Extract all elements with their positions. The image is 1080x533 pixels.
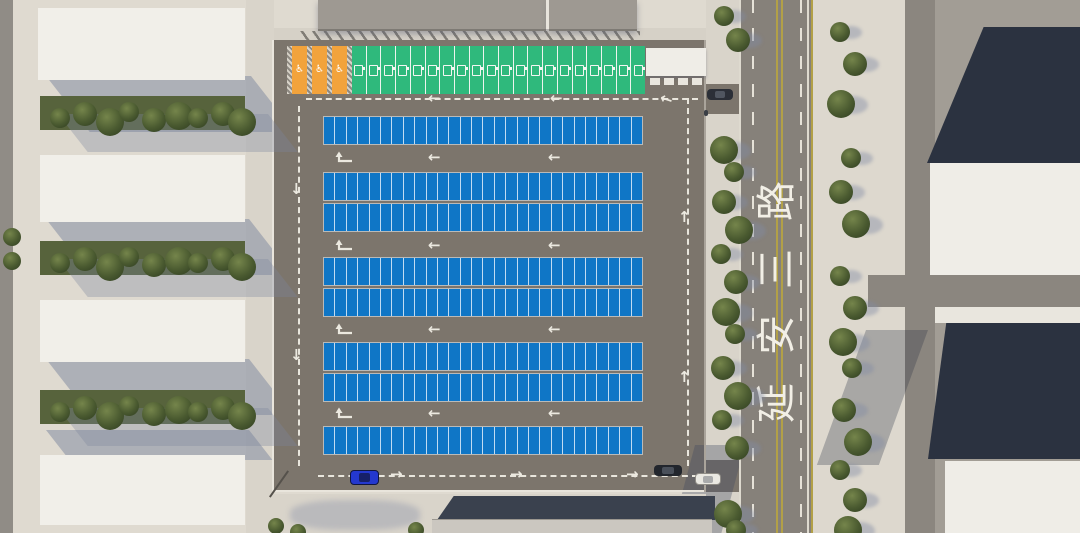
parking-stall <box>529 173 540 200</box>
parking-stall <box>552 374 563 401</box>
lane-arrow-right: → <box>390 467 403 482</box>
road-name-glyph: 延 <box>757 383 797 423</box>
pedestrian <box>704 110 708 116</box>
south-building-wall <box>432 519 712 533</box>
parking-stall <box>609 427 620 454</box>
parking-stall <box>506 117 517 144</box>
parking-stall <box>392 343 403 370</box>
parking-stall <box>483 204 494 231</box>
ev-stall <box>617 46 632 94</box>
tree <box>228 253 256 281</box>
parking-stall <box>415 117 426 144</box>
ev-charger-icon <box>443 65 452 76</box>
ev-plug-nub <box>437 67 439 70</box>
parking-stall <box>506 427 517 454</box>
parking-stall <box>381 289 392 316</box>
tree <box>830 460 850 480</box>
parking-stall <box>358 204 369 231</box>
tree <box>73 102 97 126</box>
ev-stall <box>352 46 367 94</box>
ev-charger-icon <box>619 65 628 76</box>
parking-stall <box>358 374 369 401</box>
tree <box>119 247 139 267</box>
parking-stall <box>438 173 449 200</box>
ev-charger-icon <box>501 65 510 76</box>
parking-stall <box>597 258 608 285</box>
parking-stall <box>586 427 597 454</box>
parking-stall <box>529 204 540 231</box>
parking-stall <box>370 343 381 370</box>
parking-stall <box>324 289 335 316</box>
tree <box>228 108 256 136</box>
office-dock-block <box>650 78 660 85</box>
ev-plug-nub <box>525 67 527 70</box>
parking-stall <box>575 343 586 370</box>
ev-stall <box>499 46 514 94</box>
lane-arrow-left: ← <box>428 322 441 337</box>
parking-stall <box>449 117 460 144</box>
parking-stall <box>472 374 483 401</box>
tree <box>50 253 70 273</box>
parking-stall <box>370 374 381 401</box>
lane-arrow-down: ↓ <box>290 348 303 363</box>
parking-stall <box>404 204 415 231</box>
tree <box>827 90 855 118</box>
parking-stall <box>415 343 426 370</box>
parking-stall <box>586 117 597 144</box>
ev-charger-icon <box>560 65 569 76</box>
tree <box>73 396 97 420</box>
ev-stall-band <box>352 46 645 94</box>
ev-plug-nub <box>510 67 512 70</box>
ev-stall <box>631 46 645 94</box>
tree <box>832 398 856 422</box>
tree <box>712 298 740 326</box>
accessible-stall: ♿ <box>292 46 307 94</box>
parking-stall <box>381 117 392 144</box>
parking-row <box>323 203 643 232</box>
warehouse-left-3 <box>40 300 245 362</box>
parking-stall <box>438 343 449 370</box>
parking-stall <box>392 173 403 200</box>
parking-stall <box>438 204 449 231</box>
parking-stall <box>529 374 540 401</box>
tree <box>725 436 749 460</box>
parking-stall <box>461 343 472 370</box>
parking-stall <box>347 117 358 144</box>
parking-stall <box>597 173 608 200</box>
parking-stall <box>381 427 392 454</box>
parking-stall <box>540 204 551 231</box>
road-name-glyph: 路 <box>757 181 797 221</box>
tree <box>724 162 744 182</box>
ev-charger-icon <box>369 65 378 76</box>
parking-stall <box>563 289 574 316</box>
parking-stall <box>415 427 426 454</box>
parking-stall <box>563 427 574 454</box>
parking-stall <box>358 258 369 285</box>
parking-stall <box>415 173 426 200</box>
parking-stall <box>449 289 460 316</box>
tree <box>119 102 139 122</box>
tree <box>712 410 732 430</box>
parking-stall <box>427 374 438 401</box>
parking-stall <box>540 289 551 316</box>
parking-stall <box>495 374 506 401</box>
parking-stall <box>324 427 335 454</box>
tree <box>188 108 208 128</box>
parking-stall <box>563 173 574 200</box>
parking-stall <box>392 258 403 285</box>
parking-stall <box>620 173 631 200</box>
parking-stall <box>495 258 506 285</box>
parking-stall <box>552 343 563 370</box>
parking-stall <box>597 374 608 401</box>
parking-stall <box>358 117 369 144</box>
parking-stall <box>415 258 426 285</box>
parking-stall <box>620 289 631 316</box>
parking-stall <box>392 117 403 144</box>
dark-car-east-entrance <box>707 89 733 100</box>
ev-charger-icon <box>575 65 584 76</box>
road-name-char-3: 安 <box>754 312 800 358</box>
parking-stall <box>495 117 506 144</box>
lane-arrow-left: ← <box>548 150 561 165</box>
parking-stall <box>347 289 358 316</box>
road-edge-yellow-east <box>811 0 813 533</box>
parking-stall <box>347 343 358 370</box>
parking-stall <box>324 173 335 200</box>
parking-stall <box>518 204 529 231</box>
warehouse-left-1 <box>38 8 245 80</box>
road-name-glyph: 三 <box>757 249 797 289</box>
lane-dash-east <box>800 0 802 533</box>
parking-stall <box>449 173 460 200</box>
tree <box>710 136 738 164</box>
parking-row <box>323 116 643 145</box>
parking-stall <box>358 343 369 370</box>
parking-stall <box>518 427 529 454</box>
parking-stall <box>370 117 381 144</box>
tree <box>142 402 166 426</box>
parking-stall <box>324 343 335 370</box>
lane-arrow-right: → <box>626 467 639 482</box>
tree <box>408 522 424 533</box>
parking-stall <box>518 117 529 144</box>
lane-arrow-left: ← <box>548 406 561 421</box>
tree <box>290 524 306 533</box>
parking-stall <box>472 173 483 200</box>
ev-stall <box>381 46 396 94</box>
tree <box>188 253 208 273</box>
parking-stall <box>324 374 335 401</box>
parking-stall <box>472 343 483 370</box>
car-windshield <box>703 476 713 483</box>
lane-arrow-left: ← <box>428 406 441 421</box>
road-name-glyph: 安 <box>757 315 797 355</box>
parking-stall <box>506 343 517 370</box>
parking-stall <box>461 289 472 316</box>
lane-arrow-left: ← <box>548 238 561 253</box>
parking-stall <box>483 117 494 144</box>
road-name-char-1: 路 <box>754 178 800 224</box>
parking-stall <box>415 289 426 316</box>
turn-arrow <box>332 237 353 250</box>
tree <box>843 52 867 76</box>
dark-roof-building-se <box>928 323 1080 459</box>
parking-stall <box>404 374 415 401</box>
parking-stall <box>335 374 346 401</box>
tree <box>842 210 870 238</box>
parking-stall <box>597 117 608 144</box>
ev-plug-nub <box>393 67 395 70</box>
car-windshield <box>662 467 673 475</box>
tree <box>3 228 21 246</box>
tree <box>726 28 750 52</box>
parking-stall <box>335 427 346 454</box>
parking-stall <box>586 258 597 285</box>
tree <box>119 396 139 416</box>
ev-stall <box>484 46 499 94</box>
parking-stall <box>438 427 449 454</box>
parking-stall <box>529 289 540 316</box>
ev-stall <box>514 46 529 94</box>
parking-stall <box>335 258 346 285</box>
parking-stall <box>404 427 415 454</box>
ev-plug-nub <box>569 67 571 70</box>
car-windshield <box>715 91 725 99</box>
parking-stall <box>358 173 369 200</box>
tree <box>142 253 166 277</box>
parking-stall <box>552 427 563 454</box>
ev-plug-nub <box>378 67 380 70</box>
parking-stall <box>518 258 529 285</box>
parking-stall <box>324 117 335 144</box>
parking-stall <box>540 343 551 370</box>
ev-plug-nub <box>599 67 601 70</box>
parking-stall <box>415 204 426 231</box>
parking-stall <box>540 117 551 144</box>
parking-stall <box>575 117 586 144</box>
parking-stall <box>529 343 540 370</box>
parking-stall <box>347 258 358 285</box>
ev-plug-nub <box>363 67 365 70</box>
parking-stall <box>620 427 631 454</box>
parking-stall <box>529 117 540 144</box>
parking-stall <box>483 258 494 285</box>
parking-stall <box>563 374 574 401</box>
parking-stall <box>632 173 642 200</box>
ev-charger-icon <box>398 65 407 76</box>
parking-stall <box>575 204 586 231</box>
parking-stall <box>518 374 529 401</box>
parking-stall <box>540 374 551 401</box>
parking-stall <box>483 374 494 401</box>
lane-arrow-left: ← <box>428 150 441 165</box>
parking-stall <box>540 427 551 454</box>
ev-charger-icon <box>516 65 525 76</box>
parking-stall <box>404 173 415 200</box>
warehouse-left-2 <box>40 155 245 222</box>
turn-arrow <box>332 321 353 334</box>
ev-charger-icon <box>428 65 437 76</box>
ev-charger-icon <box>634 65 643 76</box>
tree <box>50 402 70 422</box>
parking-stall <box>335 117 346 144</box>
parking-stall <box>358 427 369 454</box>
ev-plug-nub <box>466 67 468 70</box>
parking-stall <box>449 427 460 454</box>
office-dock-block <box>664 78 674 85</box>
parking-stall <box>518 289 529 316</box>
accessible-stall-band: ♿♿♿ <box>287 46 352 94</box>
ev-plug-nub <box>613 67 615 70</box>
ev-charger-icon <box>531 65 540 76</box>
parking-stall <box>586 173 597 200</box>
lot-office-building <box>646 48 706 76</box>
tree <box>843 296 867 320</box>
ev-stall <box>602 46 617 94</box>
parking-stall <box>575 289 586 316</box>
perimeter-dash-top <box>306 98 698 100</box>
parking-stall <box>609 117 620 144</box>
parking-stall <box>381 258 392 285</box>
parking-stall <box>427 117 438 144</box>
ev-plug-nub <box>584 67 586 70</box>
ev-plug-nub <box>452 67 454 70</box>
ev-charger-icon <box>590 65 599 76</box>
parking-stall <box>632 117 642 144</box>
parking-stall <box>506 173 517 200</box>
parking-stall <box>620 117 631 144</box>
ev-stall <box>440 46 455 94</box>
lane-arrow-left: ← <box>428 238 441 253</box>
parking-stall <box>438 258 449 285</box>
road-edge-line-east <box>807 0 809 533</box>
parking-stall <box>518 343 529 370</box>
ev-plug-nub <box>628 67 630 70</box>
lane-arrow-up: ↑ <box>678 210 691 225</box>
parking-stall <box>483 427 494 454</box>
parking-stall <box>381 173 392 200</box>
white-building-se <box>945 461 1080 533</box>
parking-stall <box>404 343 415 370</box>
tree <box>725 324 745 344</box>
parking-stall <box>415 374 426 401</box>
ev-plug-nub <box>496 67 498 70</box>
north-building-roof-2 <box>549 0 637 31</box>
parking-stall <box>324 258 335 285</box>
turn-arrow <box>332 149 353 162</box>
parking-stall <box>495 289 506 316</box>
ev-charger-icon <box>384 65 393 76</box>
ev-stall <box>543 46 558 94</box>
parking-stall <box>506 258 517 285</box>
ev-stall <box>558 46 573 94</box>
parking-stall <box>552 289 563 316</box>
parking-stall <box>597 204 608 231</box>
parking-stall <box>404 117 415 144</box>
parking-stall <box>575 258 586 285</box>
tree <box>724 270 748 294</box>
hatch-buffer <box>347 46 352 94</box>
ev-charger-icon <box>457 65 466 76</box>
lane-arrow-up: ↑ <box>678 370 691 385</box>
tree <box>726 520 746 533</box>
ev-plug-nub <box>643 67 645 70</box>
parking-stall <box>552 173 563 200</box>
ev-plug-nub <box>481 67 483 70</box>
parking-stall <box>495 427 506 454</box>
parking-stall <box>324 204 335 231</box>
parking-stall <box>620 374 631 401</box>
parking-stall <box>472 204 483 231</box>
parking-stall <box>632 374 642 401</box>
lane-arrow-right: → <box>510 467 523 482</box>
parking-stall <box>586 289 597 316</box>
parking-stall <box>347 173 358 200</box>
parking-stall <box>461 204 472 231</box>
parking-stall <box>529 427 540 454</box>
perimeter-dash-right <box>687 98 689 466</box>
parking-stall <box>335 343 346 370</box>
ev-stall <box>396 46 411 94</box>
parking-stall <box>597 427 608 454</box>
ev-stall <box>573 46 588 94</box>
parking-stall <box>609 258 620 285</box>
parking-row <box>323 257 643 286</box>
parking-stall <box>449 258 460 285</box>
tree <box>711 244 731 264</box>
parking-stall <box>449 374 460 401</box>
blue-car <box>350 470 379 485</box>
curb-south <box>274 490 706 492</box>
parking-stall <box>495 173 506 200</box>
service-road-branch <box>868 275 1080 307</box>
parking-stall <box>461 258 472 285</box>
parking-stall <box>586 204 597 231</box>
tree <box>829 180 853 204</box>
wheelchair-icon: ♿ <box>315 65 324 75</box>
tree <box>714 6 734 26</box>
office-dock-block <box>678 78 688 85</box>
parking-stall <box>472 117 483 144</box>
ev-stall <box>455 46 470 94</box>
parking-stall <box>563 343 574 370</box>
tree <box>228 402 256 430</box>
perimeter-dash-left <box>298 106 300 466</box>
ev-plug-nub <box>554 67 556 70</box>
white-building-ne <box>930 163 1080 275</box>
parking-stall <box>495 204 506 231</box>
parking-stall <box>483 343 494 370</box>
tree <box>3 252 21 270</box>
ev-plug-nub <box>540 67 542 70</box>
tree <box>844 428 872 456</box>
parking-stall <box>620 258 631 285</box>
parking-stall <box>609 374 620 401</box>
road-name-char-2: 三 <box>754 246 800 292</box>
wheelchair-icon: ♿ <box>335 65 344 75</box>
tree <box>711 356 735 380</box>
ev-stall <box>528 46 543 94</box>
tree <box>843 488 867 512</box>
tree <box>841 148 861 168</box>
parking-stall <box>392 204 403 231</box>
parking-stall <box>575 427 586 454</box>
parking-stall <box>586 343 597 370</box>
white-building-strip-e <box>935 307 1080 323</box>
